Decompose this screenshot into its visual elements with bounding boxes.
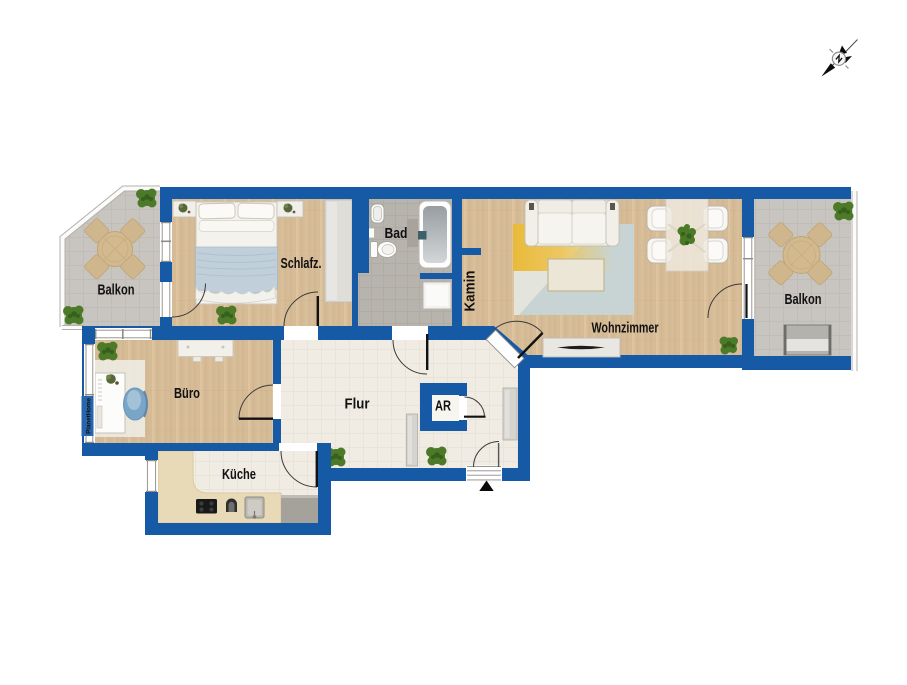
svg-text:Balkon: Balkon bbox=[785, 292, 822, 308]
svg-text:Wohnzimmer: Wohnzimmer bbox=[592, 321, 659, 337]
svg-text:PlanetHome: PlanetHome bbox=[86, 398, 93, 434]
svg-text:Schlafz.: Schlafz. bbox=[281, 256, 322, 272]
svg-text:Büro: Büro bbox=[174, 386, 200, 402]
svg-text:AR: AR bbox=[435, 399, 451, 415]
svg-text:Kamin: Kamin bbox=[463, 271, 479, 312]
svg-text:Flur: Flur bbox=[345, 397, 370, 413]
svg-text:Balkon: Balkon bbox=[98, 283, 135, 299]
svg-text:Küche: Küche bbox=[222, 467, 256, 483]
svg-text:Bad: Bad bbox=[385, 226, 408, 242]
